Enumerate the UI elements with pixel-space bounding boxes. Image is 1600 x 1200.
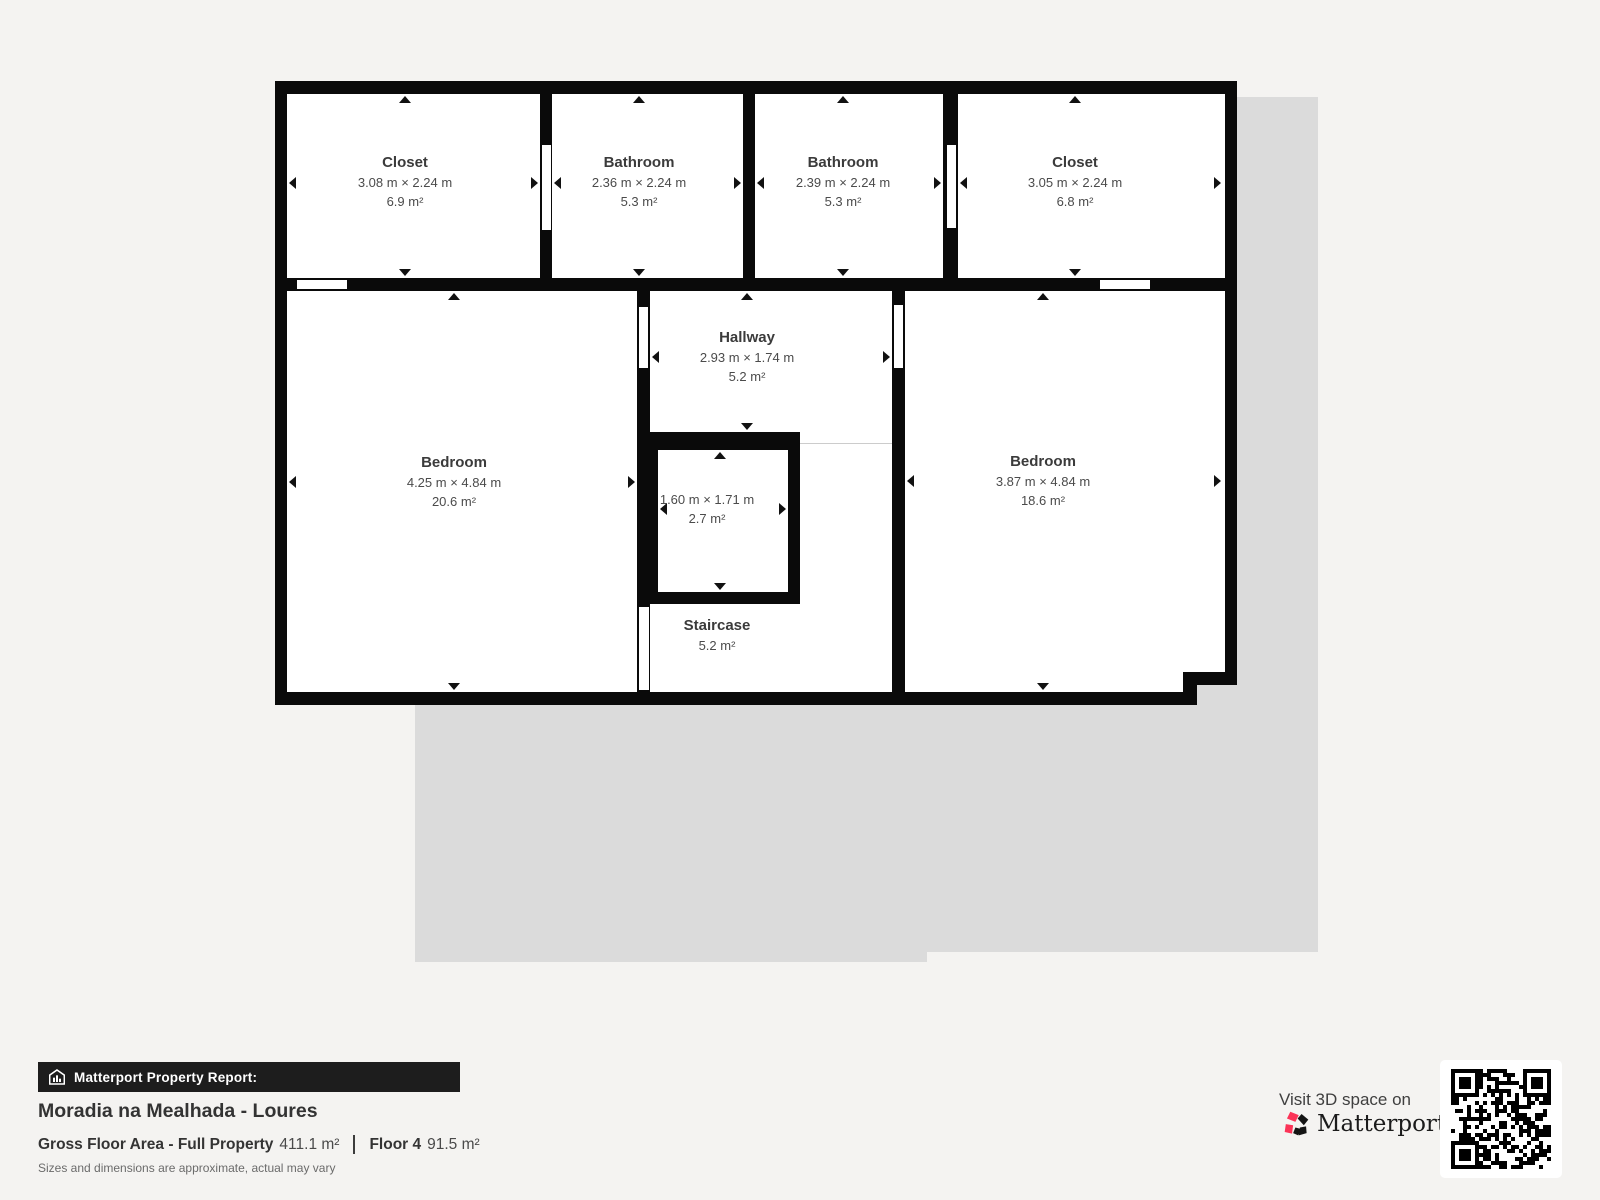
dimension-arrow-down-icon	[448, 683, 460, 690]
gross-floor-area-label: Gross Floor Area - Full Property	[38, 1136, 273, 1154]
disclaimer-text: Sizes and dimensions are approximate, ac…	[38, 1161, 335, 1175]
dimension-arrow-right-icon	[531, 177, 538, 189]
dimension-arrow-right-icon	[628, 476, 635, 488]
qr-code-image	[1451, 1069, 1551, 1169]
property-report-page: Closet 3.08 m × 2.24 m 6.9 m² Bathroom 2…	[0, 0, 1600, 1200]
dimension-arrow-left-icon	[554, 177, 561, 189]
room-name: Bathroom	[796, 153, 890, 173]
door-opening	[1100, 280, 1150, 289]
dimension-arrow-down-icon	[714, 583, 726, 590]
door-opening	[639, 307, 648, 368]
room-area: 6.9 m²	[358, 192, 452, 211]
room-area: 5.3 m²	[796, 192, 890, 211]
room-dimensions: 2.93 m × 1.74 m	[700, 348, 794, 367]
dimension-arrow-up-icon	[399, 96, 411, 103]
room-dimensions: 2.39 m × 2.24 m	[796, 173, 890, 192]
door-opening	[639, 607, 649, 690]
dimension-arrow-left-icon	[289, 476, 296, 488]
room-name: Bedroom	[407, 453, 501, 473]
room-area: 5.3 m²	[592, 192, 686, 211]
door-opening	[894, 305, 903, 368]
matterport-pinwheel-icon	[1283, 1110, 1310, 1137]
room-label-closet: Closet 3.05 m × 2.24 m 6.8 m²	[1028, 153, 1122, 211]
room-area: 6.8 m²	[1028, 192, 1122, 211]
room-name: Closet	[1028, 153, 1122, 173]
matterport-logo: Matterportʼ	[1283, 1109, 1449, 1137]
room-dimensions: 3.08 m × 2.24 m	[358, 173, 452, 192]
dimension-arrow-down-icon	[837, 269, 849, 276]
room-name: Bathroom	[592, 153, 686, 173]
room-area: 20.6 m²	[407, 492, 501, 511]
dimension-arrow-right-icon	[779, 503, 786, 515]
dimension-arrow-down-icon	[633, 269, 645, 276]
dimension-arrow-left-icon	[960, 177, 967, 189]
room-name: Staircase	[684, 616, 751, 636]
dimension-arrow-up-icon	[1069, 96, 1081, 103]
dimension-arrow-down-icon	[741, 423, 753, 430]
dimension-arrow-up-icon	[1037, 293, 1049, 300]
room-label-closet: Closet 3.08 m × 2.24 m 6.9 m²	[358, 153, 452, 211]
area-stats: Gross Floor Area - Full Property 411.1 m…	[38, 1135, 480, 1154]
room-dimensions: 2.36 m × 2.24 m	[592, 173, 686, 192]
report-banner: Matterport Property Report:	[38, 1062, 460, 1092]
region-divider-line	[800, 443, 892, 444]
room-area: 18.6 m²	[996, 491, 1090, 510]
door-opening	[297, 280, 347, 289]
dimension-arrow-down-icon	[399, 269, 411, 276]
dimension-arrow-left-icon	[757, 177, 764, 189]
matterport-wordmark: Matterportʼ	[1317, 1109, 1449, 1137]
dimension-arrow-right-icon	[934, 177, 941, 189]
room-dimensions: 4.25 m × 4.84 m	[407, 473, 501, 492]
room-label-staircase: Staircase 5.2 m²	[684, 616, 751, 655]
qr-code	[1440, 1060, 1562, 1178]
wall	[1225, 81, 1237, 685]
room-label-small-room: 1.60 m × 1.71 m 2.7 m²	[660, 490, 754, 528]
dimension-arrow-right-icon	[883, 351, 890, 363]
wall	[275, 81, 287, 705]
room-dimensions: 3.05 m × 2.24 m	[1028, 173, 1122, 192]
dimension-arrow-up-icon	[633, 96, 645, 103]
dimension-arrow-left-icon	[907, 475, 914, 487]
wall-notch	[1197, 685, 1237, 692]
wall	[275, 278, 1237, 291]
room-label-hallway: Hallway 2.93 m × 1.74 m 5.2 m²	[700, 328, 794, 386]
dimension-arrow-up-icon	[714, 452, 726, 459]
room-area: 2.7 m²	[660, 509, 754, 528]
floor-area-value: 91.5 m²	[427, 1136, 480, 1154]
floor-label: Floor 4	[369, 1136, 421, 1154]
property-title: Moradia na Mealhada - Loures	[38, 1100, 318, 1123]
dimension-arrow-right-icon	[1214, 177, 1221, 189]
room-name: Hallway	[700, 328, 794, 348]
report-banner-label: Matterport Property Report:	[74, 1070, 257, 1085]
dimension-arrow-down-icon	[1037, 683, 1049, 690]
room-label-bedroom: Bedroom 3.87 m × 4.84 m 18.6 m²	[996, 452, 1090, 510]
dimension-arrow-up-icon	[741, 293, 753, 300]
gross-floor-area-value: 411.1 m²	[279, 1136, 339, 1154]
dimension-arrow-left-icon	[652, 351, 659, 363]
wall	[1183, 672, 1197, 705]
room-dimensions: 1.60 m × 1.71 m	[660, 490, 754, 509]
room-name: Bedroom	[996, 452, 1090, 472]
dimension-arrow-up-icon	[448, 293, 460, 300]
dimension-arrow-left-icon	[289, 177, 296, 189]
stats-divider	[353, 1135, 355, 1154]
wall	[743, 94, 755, 278]
room-label-bedroom: Bedroom 4.25 m × 4.84 m 20.6 m²	[407, 453, 501, 511]
dimension-arrow-down-icon	[1069, 269, 1081, 276]
room-area: 5.2 m²	[700, 367, 794, 386]
dimension-arrow-right-icon	[734, 177, 741, 189]
dimension-arrow-right-icon	[1214, 475, 1221, 487]
visit-3d-text: Visit 3D space on	[1269, 1090, 1421, 1110]
room-area: 5.2 m²	[684, 636, 751, 655]
door-opening	[542, 145, 551, 230]
home-chart-icon	[49, 1069, 65, 1085]
room-name: Closet	[358, 153, 452, 173]
wall	[275, 81, 1237, 94]
room-dimensions: 3.87 m × 4.84 m	[996, 472, 1090, 491]
wall	[275, 692, 1197, 705]
room-label-bathroom: Bathroom 2.39 m × 2.24 m 5.3 m²	[796, 153, 890, 211]
door-opening	[947, 145, 956, 228]
room-label-bathroom: Bathroom 2.36 m × 2.24 m 5.3 m²	[592, 153, 686, 211]
dimension-arrow-up-icon	[837, 96, 849, 103]
